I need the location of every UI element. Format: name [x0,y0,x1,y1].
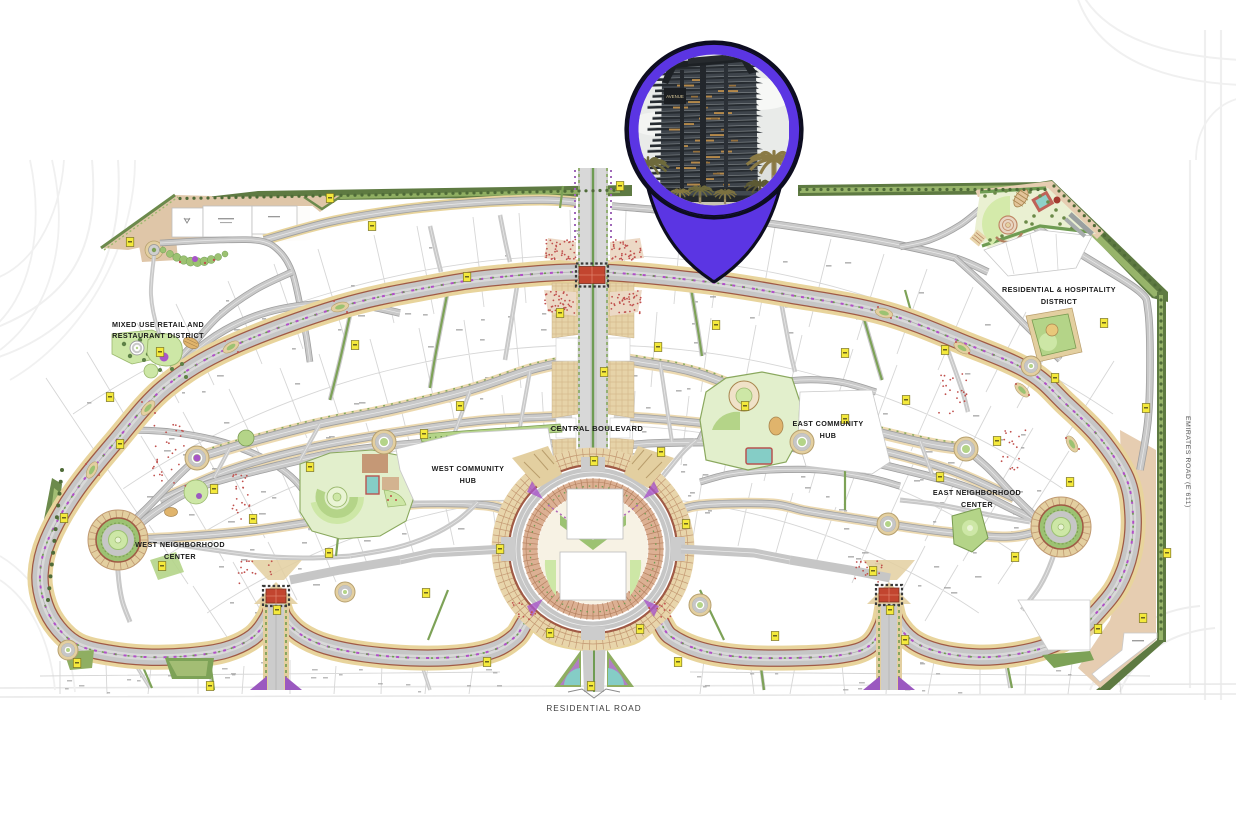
svg-text:EAST COMMUNITY: EAST COMMUNITY [792,419,863,428]
svg-text:CENTER: CENTER [961,500,993,509]
svg-text:WEST COMMUNITY: WEST COMMUNITY [432,464,505,473]
svg-text:RESTAURANT DISTRICT: RESTAURANT DISTRICT [112,331,204,340]
svg-text:AVENUE: AVENUE [666,94,684,99]
svg-text:CENTER: CENTER [164,552,196,561]
svg-text:EAST NEIGHBORHOOD: EAST NEIGHBORHOOD [933,488,1021,497]
svg-text:HUB: HUB [460,476,477,485]
svg-text:EMIRATES ROAD (E 611): EMIRATES ROAD (E 611) [1184,416,1191,508]
svg-text:MIXED USE RETAIL AND: MIXED USE RETAIL AND [112,320,204,329]
svg-text:CENTRAL BOULEVARD: CENTRAL BOULEVARD [551,424,644,433]
svg-text:WEST NEIGHBORHOOD: WEST NEIGHBORHOOD [135,540,225,549]
svg-text:DISTRICT: DISTRICT [1041,297,1078,306]
svg-text:HUB: HUB [820,431,837,440]
svg-text:RESIDENTIAL ROAD: RESIDENTIAL ROAD [546,704,641,713]
svg-text:RESIDENTIAL & HOSPITALITY: RESIDENTIAL & HOSPITALITY [1002,285,1116,294]
